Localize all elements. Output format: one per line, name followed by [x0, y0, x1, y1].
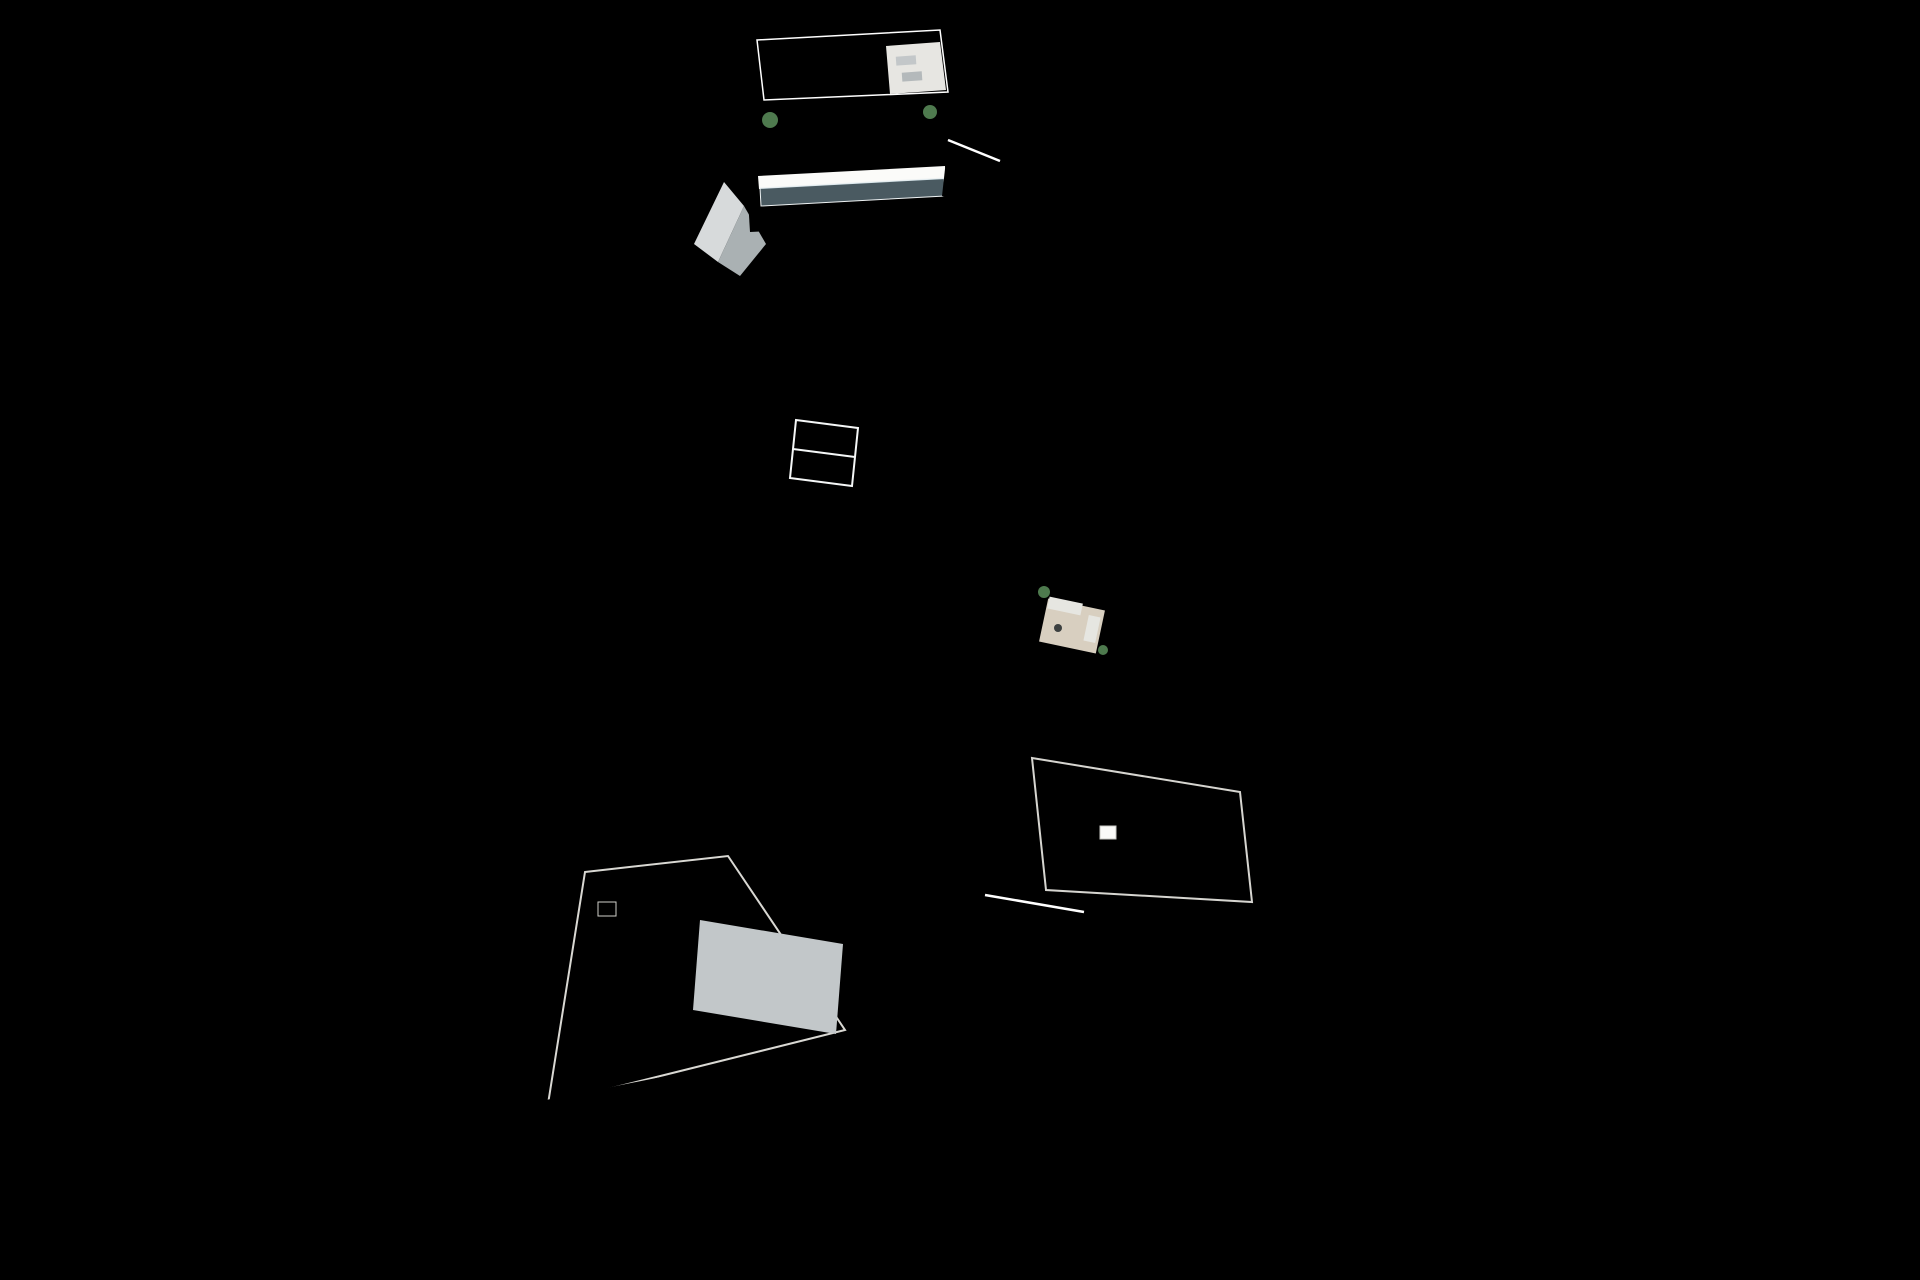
glass-pavilion [790, 420, 858, 486]
roof-lounger [902, 71, 923, 81]
render-canvas [0, 0, 1920, 1280]
pool-ripple [750, 659, 790, 673]
terrace-plant [1038, 586, 1050, 598]
kids-pool [746, 305, 835, 385]
top-building-roof-terrace [886, 42, 946, 94]
villa-roof-box [598, 902, 616, 916]
terrace-plant [1098, 645, 1108, 655]
roof-hatch [1100, 826, 1116, 839]
terrace-table [1054, 624, 1062, 632]
site-plan-3d-render [0, 0, 1920, 1280]
roof-lounger [896, 55, 917, 65]
main-pool-water [652, 521, 805, 700]
balcony-plant [762, 112, 778, 128]
balcony-plant [923, 105, 937, 119]
top-building-roof-glazing [780, 46, 884, 94]
